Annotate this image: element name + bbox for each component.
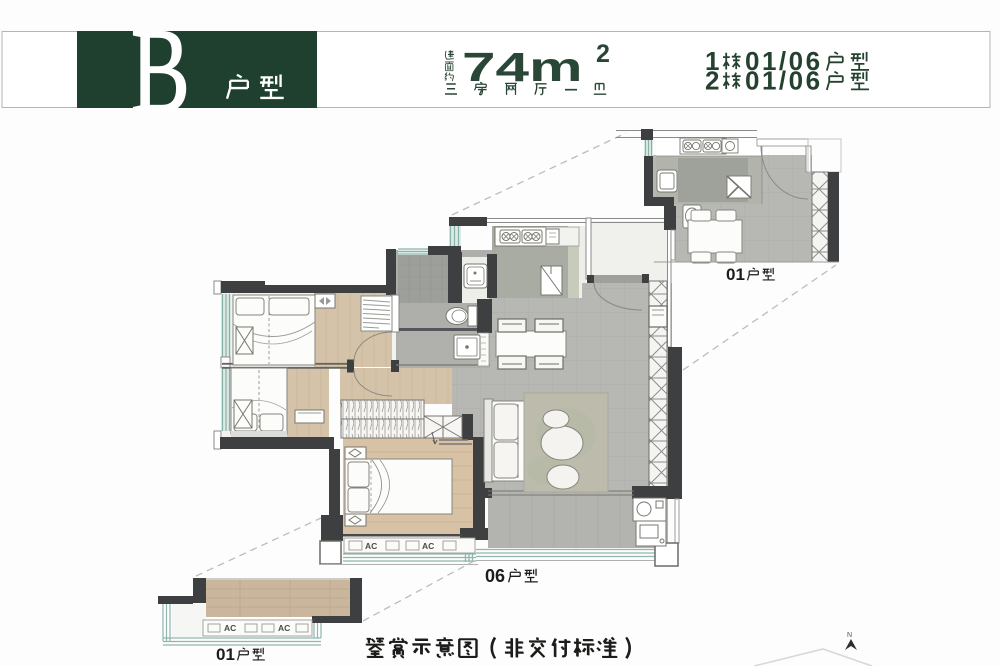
svg-text:AC: AC xyxy=(365,541,377,551)
svg-text:AC: AC xyxy=(224,623,236,633)
svg-text:01: 01 xyxy=(216,645,235,664)
svg-text:AC: AC xyxy=(422,541,434,551)
svg-text:N: N xyxy=(847,632,852,639)
svg-text:01/06: 01/06 xyxy=(745,66,823,96)
svg-text:01: 01 xyxy=(726,265,745,284)
svg-text:2: 2 xyxy=(705,66,720,96)
svg-text:2: 2 xyxy=(596,40,610,68)
svg-text:B: B xyxy=(131,4,190,138)
svg-text:AC: AC xyxy=(278,623,290,633)
svg-text:06: 06 xyxy=(485,566,505,586)
